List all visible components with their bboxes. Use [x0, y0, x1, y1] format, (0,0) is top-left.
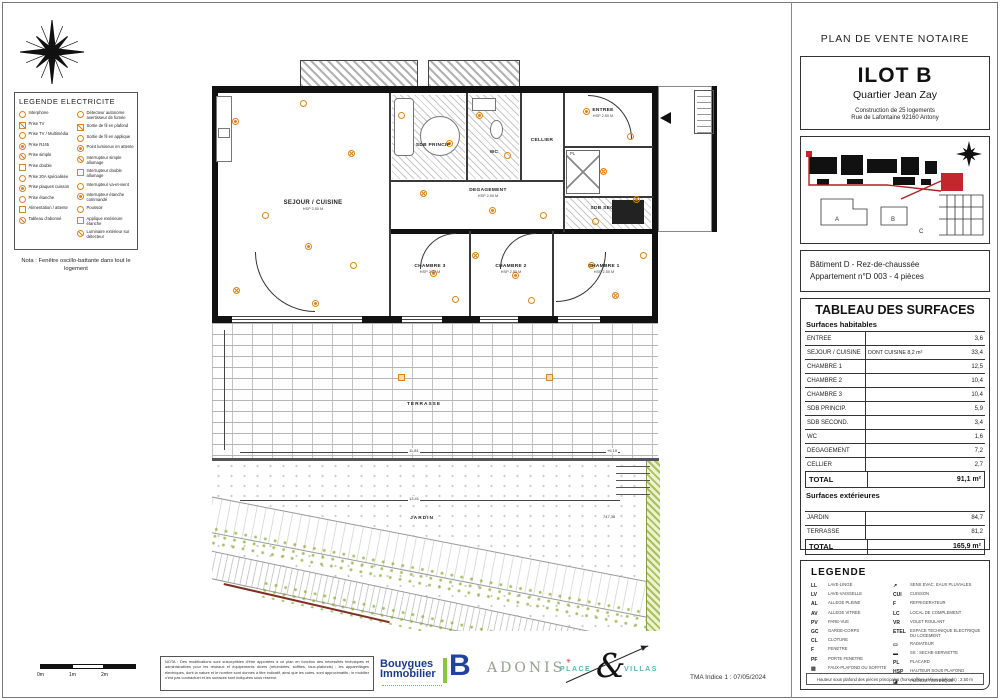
elec-legend-item: Sortie de fil en plafond — [77, 124, 135, 131]
surface-room-value: 1,6 — [956, 430, 985, 443]
wall — [212, 86, 658, 93]
bouygues-line2: Immobilier — [380, 669, 436, 679]
elec-legend-label: Interrupteur double allumage — [87, 169, 136, 179]
total-value: 91,1 m² — [868, 472, 984, 487]
dimension-line — [240, 452, 620, 453]
surface-room-detail — [866, 458, 956, 471]
elec-legend-label: Interphone — [29, 111, 49, 116]
room-label-entree: ENTREE HSP 2.50 M — [576, 108, 630, 118]
site-map: ABC — [801, 137, 989, 243]
bouygues-tagline — [382, 685, 442, 686]
corridor-note-box — [694, 90, 714, 134]
electrical-symbol-icon — [398, 112, 405, 119]
elec-legend-label: Alimentation / attente — [29, 206, 68, 211]
elec-legend-item: Prise TV / Multimédia — [19, 132, 77, 139]
surfaces-title: TABLEAU DES SURFACES — [801, 303, 989, 317]
bouygues-logo: Bouygues Immobilier B — [380, 655, 485, 695]
surface-room-label: CHAMBRE 1 — [805, 360, 866, 373]
electrical-symbol-icon — [420, 190, 427, 197]
level-label: 747,38 — [602, 514, 616, 519]
surfaces-table-box: TABLEAU DES SURFACES Surfaces habitables… — [800, 298, 990, 550]
elec-legend-label: Prise RJ45 — [29, 143, 49, 148]
room-label-chambre2: CHAMBRE 2 HSP 2.50 M — [479, 264, 543, 274]
surfaces-total-row: TOTAL 91,1 m² — [805, 472, 985, 488]
window — [480, 316, 518, 323]
legend-label: PARE-VUE — [828, 620, 849, 625]
table-row: WC 1,6 — [805, 430, 985, 444]
legend-abbr: VR — [893, 620, 910, 626]
oscillo-battante-note: Nota : Fenêtre oscillo-battante dans tou… — [14, 258, 138, 273]
table-row: JARDIN 84,7 — [805, 512, 985, 526]
table-row: SDB PRINCIP. 5,9 — [805, 402, 985, 416]
volet-roulant-icon — [546, 374, 553, 381]
elec-symbol-icon — [19, 164, 26, 171]
legend-abbr: CUI — [893, 592, 910, 598]
table-row: DEGAGEMENT 7,2 — [805, 444, 985, 458]
svg-text:A: A — [835, 217, 839, 223]
surfaces-habitable-table: ENTREE 3,6 SEJOUR / CUISINE DONT CUISINE… — [805, 331, 985, 472]
elec-symbol-icon — [77, 193, 84, 200]
legend-label: ALLEGE PLEINE — [828, 601, 860, 606]
elec-legend-item: Prise 20A spécialisée — [19, 175, 77, 182]
legend-label: PLACARD — [910, 660, 930, 665]
project-district: Quartier Jean Zay — [801, 89, 989, 101]
partition — [552, 231, 554, 316]
surface-room-value: 84,7 — [956, 512, 985, 525]
legend-item: ▨ FAUX-PLAFOND OU SOFFITE — [811, 666, 893, 672]
elec-legend-item: Prise TV — [19, 122, 77, 129]
entry-arrow-icon — [660, 112, 671, 124]
total-value: 165,9 m² — [868, 540, 984, 555]
surface-room-value: 81,2 — [956, 526, 985, 539]
revision-index: TMA Indice 1 : 07/05/2024 — [690, 674, 766, 681]
window — [232, 316, 362, 323]
surface-room-label: SDB PRINCIP. — [805, 402, 866, 415]
legend-item: ETEL ESPACE TECHNIQUE ELECTRIQUE DU LOGE… — [893, 629, 985, 639]
surface-room-value: 10,4 — [956, 388, 985, 401]
legend-item: LC LOCAL DE COMPLEMENT — [893, 611, 985, 617]
total-label: TOTAL — [806, 540, 868, 555]
room-label-wc: WC — [482, 150, 506, 155]
unit-apartment: Appartement n°D 003 - 4 pièces — [810, 271, 989, 283]
terrace-label: TERRASSE — [392, 402, 456, 407]
plan-sheet: LEGENDE ELECTRICITE Interphone Prise TV — [0, 0, 1000, 700]
elec-legend-label: Point lumineux en attente — [87, 145, 134, 150]
table-row: TERRASSE 81,2 — [805, 526, 985, 540]
room-label-cellier: CELLIER — [520, 138, 564, 143]
room-label-chambre1: CHAMBRE 1 HSP 2.50 M — [572, 264, 636, 274]
surface-room-value: 7,2 — [956, 444, 985, 457]
surfaces-habitable-heading: Surfaces habitables — [806, 320, 989, 329]
surface-room-value: 12,5 — [956, 360, 985, 373]
surface-room-detail — [866, 416, 956, 429]
elec-legend-item: Prise simple — [19, 153, 77, 160]
adonis-logo: ADONIS — [487, 660, 565, 676]
legend-item: AV ALLEGE VITREE — [811, 611, 893, 617]
legend-item: PV PARE-VUE — [811, 620, 893, 626]
surface-room-detail — [866, 430, 956, 443]
electrical-symbol-icon — [348, 150, 355, 157]
project-name: ILOT B — [801, 64, 989, 88]
elec-legend-item: Poussoir — [77, 206, 135, 213]
elec-legend-label: Prise simple — [29, 153, 52, 158]
partition — [520, 93, 522, 181]
bouygues-b-icon: B — [449, 649, 471, 683]
elec-symbol-icon — [77, 206, 84, 213]
electrical-symbol-icon — [476, 112, 483, 119]
legend-label: FENETRE — [828, 647, 848, 652]
window — [558, 316, 600, 323]
elec-legend-item: Sortie de fil en applique — [77, 135, 135, 142]
surface-room-label: ENTREE — [805, 332, 866, 345]
scale-segment — [40, 664, 72, 669]
partition — [563, 93, 565, 232]
electrical-symbol-icon — [489, 207, 496, 214]
electrical-symbol-icon — [528, 297, 535, 304]
legend-label: ALLEGE VITREE — [828, 611, 861, 616]
surface-room-value: 5,9 — [956, 402, 985, 415]
elec-legend-item: Point lumineux en attente — [77, 145, 135, 152]
project-box: ILOT B Quartier Jean Zay Construction de… — [800, 56, 990, 130]
electrical-symbol-icon — [633, 196, 640, 203]
dimension-label: 13,41 — [408, 496, 420, 501]
legend-abbr: LL — [811, 583, 828, 589]
elec-legend-item: Applique extérieure étanche — [77, 217, 135, 227]
surface-room-detail — [866, 360, 956, 373]
elec-symbol-icon — [77, 217, 84, 224]
shower — [420, 116, 460, 156]
toilet — [490, 120, 503, 139]
elec-symbol-icon — [77, 124, 84, 131]
elec-legend-label: Luminaire extérieur sur détecteur — [87, 230, 136, 240]
room-label-sdb-second: SDB SECOND — [572, 206, 644, 211]
elec-legend-item: Prise RJ45 — [19, 143, 77, 150]
electrical-symbol-icon — [305, 243, 312, 250]
legend-item: CL CLOTURE — [811, 638, 893, 644]
legend-abbr: PV — [811, 620, 828, 626]
electrical-symbol-icon — [600, 168, 607, 175]
elec-legend-item: Prise plaques cuisson — [19, 185, 77, 192]
table-row: ENTREE 3,6 — [805, 332, 985, 346]
room-label-sejour: SEJOUR / CUISINE HSP 2.50 M — [258, 200, 368, 211]
table-row: SEJOUR / CUISINE DONT CUISINE 8,2 m² 33,… — [805, 346, 985, 360]
electrical-symbol-icon — [350, 262, 357, 269]
legend-note: Hauteur sous plafond des pièces principa… — [806, 673, 984, 685]
garden-area — [212, 461, 659, 631]
kitchen-sink — [218, 128, 230, 138]
surface-room-value: 3,4 — [956, 416, 985, 429]
elec-legend-item: Prise double — [19, 164, 77, 171]
upper-hatch-block — [300, 60, 418, 87]
surfaces-ext-total-row: TOTAL 165,9 m² — [805, 540, 985, 556]
compass-rose-icon — [16, 16, 88, 88]
legend-item: ↗ SENS EVAC. EAUX PLUVIALES — [893, 583, 985, 589]
elec-legend-item: Tableau d'abonné — [19, 217, 77, 224]
scale-segment — [72, 664, 104, 669]
electrical-legend-col-b: Détecteur autonome avertisseur de fumée … — [77, 111, 135, 243]
legend-abbr: PL — [893, 660, 910, 666]
elec-symbol-icon — [19, 122, 26, 129]
bouygues-green-bar-icon — [443, 658, 447, 683]
elec-symbol-icon — [77, 135, 84, 142]
elec-symbol-icon — [77, 111, 84, 118]
surface-room-detail — [866, 374, 956, 387]
legend-item: CUI CUISSON — [893, 592, 985, 598]
elec-legend-label: Prise TV — [29, 122, 45, 127]
legend-item: ▭ RADIATEUR — [893, 642, 985, 648]
legend-item: LV LAVE-VAISSELLE — [811, 592, 893, 598]
legend-abbr: ▭ — [893, 642, 910, 648]
electrical-symbol-icon — [300, 100, 307, 107]
legend-abbr: AV — [811, 611, 828, 617]
elec-legend-label: Interrupteur va-et-vient — [87, 183, 129, 188]
elec-symbol-icon — [77, 169, 84, 176]
electrical-symbol-icon — [233, 287, 240, 294]
legend-abbr: LV — [811, 592, 828, 598]
electrical-symbol-icon — [452, 296, 459, 303]
electrical-symbol-icon — [612, 292, 619, 299]
legend-abbr: AL — [811, 601, 828, 607]
electrical-symbol-icon — [472, 252, 479, 259]
elec-symbol-icon — [77, 156, 84, 163]
legend-abbr: GC — [811, 629, 828, 635]
elec-symbol-icon — [19, 111, 26, 118]
elec-legend-label: Prise étanche — [29, 196, 55, 201]
legend-label: SENS EVAC. EAUX PLUVIALES — [910, 583, 971, 588]
legend-label: REFRIGERATEUR — [910, 601, 946, 606]
surface-room-value: 3,6 — [956, 332, 985, 345]
elec-symbol-icon — [19, 196, 26, 203]
door-arc — [255, 252, 315, 312]
legend-label: GARDE-CORPS — [828, 629, 859, 634]
partition — [469, 231, 471, 316]
bouygues-wordmark: Bouygues Immobilier — [380, 659, 436, 680]
surface-room-detail — [866, 444, 956, 457]
dimension-line — [240, 500, 620, 501]
legend-abbr: F — [893, 601, 910, 607]
legend-label: RADIATEUR — [910, 642, 934, 647]
legend-item: AL ALLEGE PLEINE — [811, 601, 893, 607]
elec-symbol-icon — [77, 145, 84, 152]
legend-abbr: ETEL — [893, 629, 910, 635]
electrical-symbol-icon — [540, 212, 547, 219]
elec-legend-item: Interrupteur va-et-vient — [77, 183, 135, 190]
legend-col-a: LL LAVE-LINGE LV LAVE-VAISSELLE AL ALLEG… — [811, 583, 893, 688]
surfaces-ext-table: JARDIN 84,7 TERRASSE 81,2 — [805, 511, 985, 540]
table-row: SDB SECOND. 3,4 — [805, 416, 985, 430]
surface-room-label: SDB SECOND. — [805, 416, 866, 429]
garden-label: JARDIN — [390, 516, 454, 521]
legend-label: FAUX-PLAFOND OU SOFFITE — [828, 666, 886, 671]
surfaces-ext-heading: Surfaces extérieures — [806, 491, 989, 500]
terrace-area — [212, 323, 658, 458]
surface-room-label: TERRASSE — [805, 526, 866, 539]
level-label: +6,10 — [606, 448, 618, 453]
elec-legend-label: Interrupteur simple allumage — [87, 156, 136, 166]
electrical-symbol-icon — [312, 300, 319, 307]
etel-box — [612, 200, 644, 224]
spacer — [801, 502, 989, 511]
legend-label: CUISSON — [910, 592, 929, 597]
partition — [389, 93, 391, 316]
total-label: TOTAL — [806, 472, 868, 487]
legend-label: PORTE FENETRE — [828, 657, 863, 662]
elec-legend-label: Sortie de fil en applique — [87, 135, 131, 140]
table-row: CHAMBRE 1 12,5 — [805, 360, 985, 374]
elec-legend-label: Prise 20A spécialisée — [29, 175, 69, 180]
legend-label: LAVE-VAISSELLE — [828, 592, 862, 597]
elec-legend-label: Interrupteur étanche commandé — [87, 193, 136, 203]
table-row: CELLIER 2,7 — [805, 458, 985, 472]
elec-symbol-icon — [19, 206, 26, 213]
legend-label: CLOTURE — [828, 638, 848, 643]
surface-room-label: WC — [805, 430, 866, 443]
electrical-symbol-icon — [592, 218, 599, 225]
legend-item: GC GARDE-CORPS — [811, 629, 893, 635]
elec-legend-item: Alimentation / attente — [19, 206, 77, 213]
elec-legend-item: Détecteur autonome avertisseur de fumée — [77, 111, 135, 121]
volet-roulant-icon — [398, 374, 405, 381]
surface-room-detail — [866, 402, 956, 415]
room-label-sdb-princip: SDB PRINCIP — [400, 143, 466, 148]
elec-legend-item: Interphone — [19, 111, 77, 118]
elec-symbol-icon — [19, 175, 26, 182]
surface-room-label: DEGAGEMENT — [805, 444, 866, 457]
table-row: CHAMBRE 2 10,4 — [805, 374, 985, 388]
elec-symbol-icon — [77, 230, 84, 237]
elec-legend-label: Détecteur autonome avertisseur de fumée — [87, 111, 136, 121]
scale-label: 0m — [37, 672, 44, 678]
elec-legend-label: Prise TV / Multimédia — [29, 132, 69, 137]
legend-abbr: F — [811, 647, 828, 653]
legend-abbr: ▨ — [811, 666, 828, 672]
elec-legend-label: Sortie de fil en plafond — [87, 124, 129, 129]
legend-item: F FENETRE — [811, 647, 893, 653]
surface-room-label: CELLIER — [805, 458, 866, 471]
elec-legend-item: Interrupteur double allumage — [77, 169, 135, 179]
electrical-symbol-icon — [640, 252, 647, 259]
door-arc — [556, 252, 606, 302]
room-label-degagement: DEGAGEMENT HSP 2.50 M — [448, 188, 528, 198]
legend-abbr: CL — [811, 638, 828, 644]
legend-label: ESPACE TECHNIQUE ELECTRIQUE DU LOGEMENT — [910, 629, 985, 639]
surface-room-value: 2,7 — [956, 458, 985, 471]
surface-room-label: SEJOUR / CUISINE — [805, 346, 866, 359]
elec-legend-item: Interrupteur simple allumage — [77, 156, 135, 166]
legend-abbr: LC — [893, 611, 910, 617]
elec-symbol-icon — [19, 217, 26, 224]
elec-symbol-icon — [19, 132, 26, 139]
surface-room-label: CHAMBRE 2 — [805, 374, 866, 387]
room-label-chambre3: CHAMBRE 3 HSP 2.50 M — [398, 264, 462, 274]
placard-closet — [566, 150, 600, 194]
surface-room-detail: DONT CUISINE 8,2 m² — [866, 346, 956, 359]
legend-item: LL LAVE-LINGE — [811, 583, 893, 589]
legend-label: SS : SECHE-SERVIETTE — [910, 651, 958, 656]
elec-legend-item: Luminaire extérieur sur détecteur — [77, 230, 135, 240]
surface-room-detail — [866, 332, 956, 345]
legend-abbr: ▬ — [893, 651, 910, 657]
window — [402, 316, 442, 323]
legend-item: F REFRIGERATEUR — [893, 601, 985, 607]
electrical-legend-box: LEGENDE ELECTRICITE Interphone Prise TV — [14, 92, 138, 250]
legend-label: LAVE-LINGE — [828, 583, 852, 588]
electrical-symbol-icon — [232, 118, 239, 125]
legend-label: VOLET ROULANT — [910, 620, 945, 625]
legend-item: PF PORTE FENETRE — [811, 657, 893, 663]
scale-segment — [104, 664, 136, 669]
svg-text:C: C — [919, 229, 924, 235]
surface-room-detail — [866, 512, 956, 525]
electrical-legend-columns: Interphone Prise TV Prise TV / Multimédi… — [15, 111, 137, 243]
electrical-symbol-icon — [627, 133, 634, 140]
legend-box: LEGENDE LL LAVE-LINGE LV LAVE-VAISSELLE — [800, 560, 990, 690]
elec-symbol-icon — [77, 183, 84, 190]
partition — [563, 146, 653, 148]
unit-building: Bâtiment D - Rez-de-chaussée — [810, 259, 989, 271]
elec-symbol-icon — [19, 153, 26, 160]
place-villas-logo: PLACE & VILLAS — [560, 650, 662, 694]
scale-label: 1m — [69, 672, 76, 678]
legend-item: VR VOLET ROULANT — [893, 620, 985, 626]
table-row: CHAMBRE 3 10,4 — [805, 388, 985, 402]
dimension-label: 11,81 — [408, 448, 420, 453]
garden-steps — [616, 466, 650, 496]
legend-abbr: ↗ — [893, 583, 910, 589]
electrical-symbol-icon — [262, 212, 269, 219]
surface-room-value: 10,4 — [956, 374, 985, 387]
project-address: Rue de Lafontaine 92160 Antony — [801, 115, 989, 121]
document-title: PLAN DE VENTE NOTAIRE — [800, 28, 990, 50]
legend-item: PL PLACARD — [893, 660, 985, 666]
project-construction: Construction de 25 logements — [801, 108, 989, 114]
elec-symbol-icon — [19, 185, 26, 192]
elec-legend-item: Interrupteur étanche commandé — [77, 193, 135, 203]
surface-room-detail — [866, 526, 956, 539]
unit-box: Bâtiment D - Rez-de-chaussée Appartement… — [800, 250, 990, 292]
elec-legend-label: Applique extérieure étanche — [87, 217, 136, 227]
legend-item: ▬ SS : SECHE-SERVIETTE — [893, 651, 985, 657]
site-compass-icon — [956, 141, 982, 167]
surface-room-label: JARDIN — [805, 512, 866, 525]
surface-room-detail — [866, 388, 956, 401]
footer-nota: NOTA : Des modifications sont susceptibl… — [160, 656, 374, 691]
dimension-line — [224, 330, 225, 450]
elec-legend-label: Prise double — [29, 164, 52, 169]
washbasin — [472, 98, 496, 111]
site-map-box: ABC — [800, 136, 990, 244]
legend-abbr: PF — [811, 657, 828, 663]
elec-legend-label: Tableau d'abonné — [29, 217, 62, 222]
surface-room-label: CHAMBRE 3 — [805, 388, 866, 401]
villas-text: VILLAS — [624, 666, 658, 673]
svg-text:B: B — [891, 217, 895, 223]
scale-label: 2m — [101, 672, 108, 678]
placard-label: PL — [570, 151, 575, 156]
electrical-legend-title: LEGENDE ELECTRICITE — [19, 97, 135, 106]
legend-label: LOCAL DE COMPLEMENT — [910, 611, 961, 616]
legend-columns: LL LAVE-LINGE LV LAVE-VAISSELLE AL ALLEG… — [801, 583, 989, 688]
legend-title: LEGENDE — [811, 567, 989, 578]
electrical-legend-col-a: Interphone Prise TV Prise TV / Multimédi… — [19, 111, 77, 243]
title-block-separator — [791, 2, 792, 698]
elec-legend-item: Prise étanche — [19, 196, 77, 203]
elec-symbol-icon — [19, 143, 26, 150]
upper-hatch-block — [428, 60, 520, 87]
elec-legend-label: Prise plaques cuisson — [29, 185, 70, 190]
partition — [390, 180, 565, 182]
elec-legend-label: Poussoir — [87, 206, 103, 211]
